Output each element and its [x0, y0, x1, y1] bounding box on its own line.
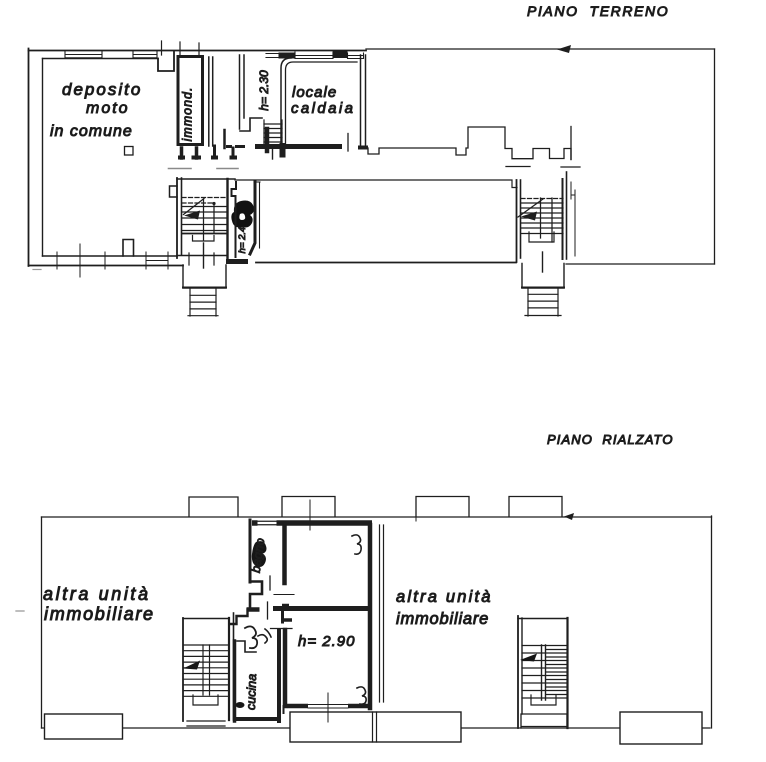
svg-text:h= 2.4: h= 2.4: [237, 227, 248, 254]
svg-text:h= 2.90: h= 2.90: [298, 633, 355, 650]
svg-text:h= 2.30: h= 2.30: [257, 70, 271, 111]
svg-text:altra unità: altra unità: [396, 588, 493, 606]
svg-text:altra unità: altra unità: [43, 584, 151, 604]
svg-text:in comune: in comune: [50, 123, 133, 140]
svg-text:caldaia: caldaia: [291, 100, 355, 117]
svg-text:immobiliare: immobiliare: [44, 604, 155, 624]
svg-text:cucina: cucina: [244, 674, 259, 711]
svg-text:deposito: deposito: [62, 80, 142, 99]
svg-text:locale: locale: [292, 84, 337, 101]
svg-text:moto: moto: [86, 100, 130, 117]
svg-text:immond.: immond.: [181, 87, 195, 142]
svg-text:PIANO TERRENO: PIANO TERRENO: [527, 3, 669, 19]
svg-text:immobiliare: immobiliare: [396, 610, 489, 628]
svg-text:PIANO RIALZATO: PIANO RIALZATO: [547, 432, 674, 447]
